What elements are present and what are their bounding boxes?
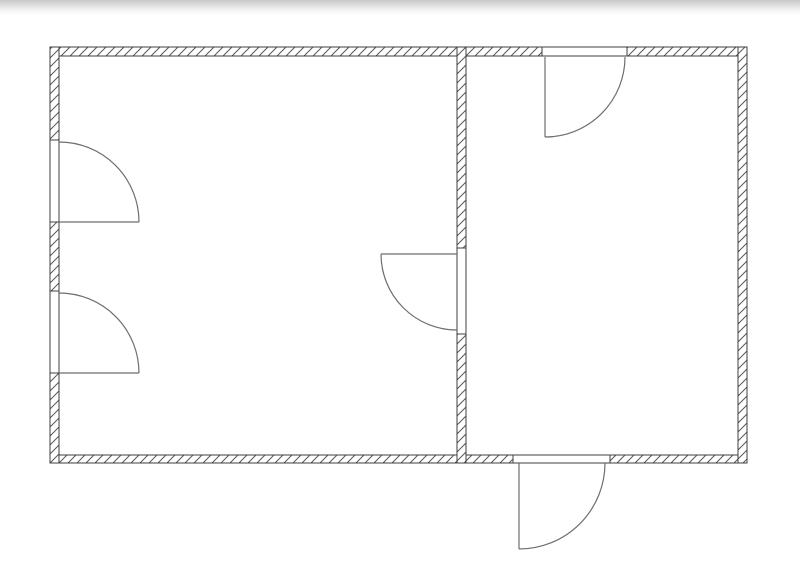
floorplan-drawing: [0, 0, 800, 574]
opening-top-gap: [543, 48, 627, 56]
door-swings-layer: [59, 57, 625, 549]
door-openings-layer: [50, 47, 627, 463]
door-left-upper-swing-arc: [59, 142, 139, 222]
opening-left-lower-gap: [51, 292, 59, 373]
walls-layer: [50, 47, 747, 463]
wall-left: [50, 47, 59, 463]
page-background: [0, 0, 800, 574]
door-interior-wall-swing-arc: [381, 254, 457, 330]
door-left-lower-swing-arc: [59, 293, 139, 373]
opening-bottom-gap: [514, 456, 610, 463]
wall-bottom: [50, 455, 747, 463]
opening-interior-gap: [458, 249, 466, 334]
wall-top: [50, 47, 747, 56]
opening-left-upper-gap: [51, 141, 59, 222]
door-top-right-room-swing-arc: [545, 57, 625, 137]
wall-right: [738, 47, 747, 463]
door-bottom-exterior-swing-arc: [519, 463, 605, 549]
